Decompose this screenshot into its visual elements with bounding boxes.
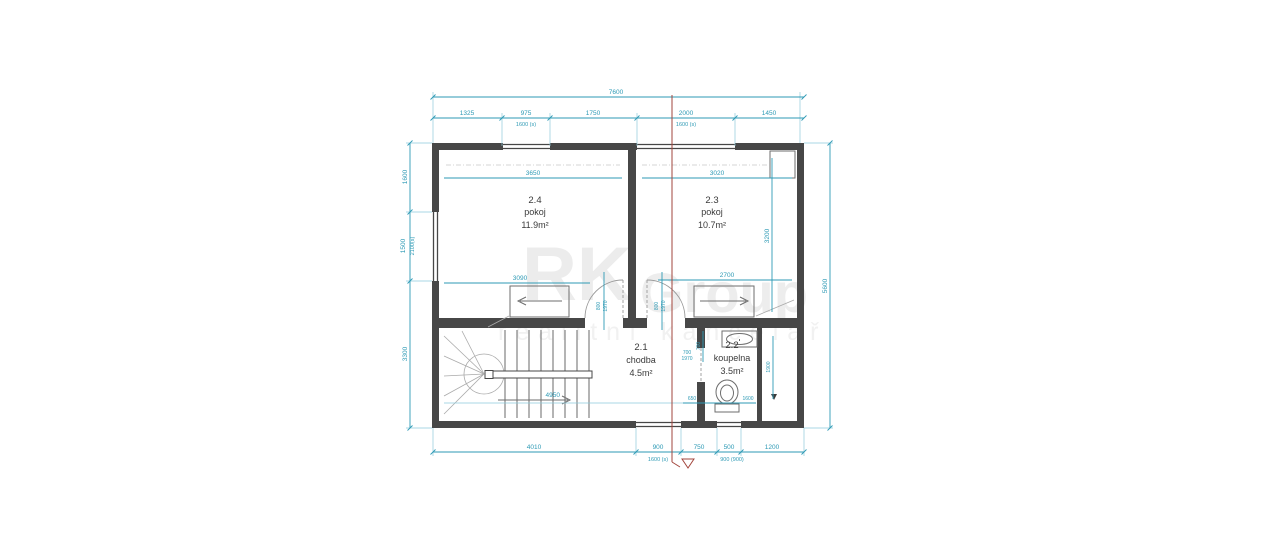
dim-top-3: 1750: [586, 110, 601, 117]
floor-plan-canvas: RK Group realitní kancelář: [0, 0, 1280, 551]
dim-door24-height: 1970: [603, 300, 609, 311]
room-22-name: koupelna: [714, 353, 751, 363]
dim-top-4: 2000: [679, 110, 694, 117]
dim-left-1: 1600: [402, 169, 409, 184]
dim-left-2: 1500: [400, 238, 407, 253]
chimney-shaft: [770, 151, 795, 178]
dim-room23-right: 3200: [764, 228, 771, 243]
closet-marker-triangle: [771, 394, 777, 400]
dim-bath-door-height: 1970: [681, 356, 692, 362]
dim-room23-bottom: 2700: [720, 272, 735, 279]
room-label-21: 2.1 chodba 4.5m²: [626, 342, 656, 378]
room-24-name: pokoj: [524, 207, 546, 217]
watermark: RK Group realitní kancelář: [498, 232, 827, 346]
room-label-23: 2.3 pokoj 10.7m²: [698, 195, 726, 230]
room-23-number: 2.3: [705, 195, 718, 206]
dim-bottom-5: 1200: [765, 444, 780, 451]
dim-bottom-2-sill: 1600 (s): [648, 457, 668, 463]
room-24-area: 11.9m²: [521, 220, 548, 230]
dim-top-2-sill: 1600 (s): [516, 122, 536, 128]
dim-bottom-3: 750: [694, 444, 705, 451]
dim-top-2: 975: [521, 110, 532, 117]
dim-bottom-1: 4010: [527, 444, 542, 451]
room-label-24: 2.4 pokoj 11.9m²: [521, 195, 548, 230]
room-22-area: 3.5m²: [720, 366, 743, 376]
dim-bottom-2: 900: [653, 444, 664, 451]
dim-right-total: 5600: [822, 278, 829, 293]
floor-plan-drawing: RK Group realitní kancelář: [0, 0, 1280, 551]
room-21-name: chodba: [626, 355, 656, 365]
dim-bottom-4-sill: 900 (900): [720, 457, 744, 463]
room-24-number: 2.4: [528, 195, 541, 206]
dim-left-2-sill: 2100(s): [410, 237, 416, 256]
stair-level-note: 4950: [546, 392, 561, 399]
dim-wc-right: 1600: [742, 396, 753, 402]
room-22-number: 2.2: [725, 340, 738, 351]
dim-sink: 700: [696, 342, 702, 351]
room-23-name: pokoj: [701, 207, 723, 217]
dim-bottom-4: 500: [724, 444, 735, 451]
dim-door23-width: 800: [654, 302, 660, 311]
watermark-rk: RK: [522, 232, 632, 317]
dim-room23-top: 3020: [710, 170, 725, 177]
dim-total-width: 7600: [609, 89, 624, 96]
dim-room24-top: 3650: [526, 170, 541, 177]
dim-left-3: 3300: [402, 346, 409, 361]
toilet: [715, 380, 739, 412]
room-21-number: 2.1: [634, 342, 647, 353]
dim-door24-width: 800: [596, 302, 602, 311]
dim-top-1: 1325: [460, 110, 475, 117]
dim-door23-height: 1970: [661, 300, 667, 311]
dim-wc-left: 650: [688, 396, 697, 402]
watermark-group: Group: [640, 261, 808, 324]
dim-top-4-sill: 1600 (s): [676, 122, 696, 128]
dim-closet: 1900: [766, 361, 772, 372]
room-23-area: 10.7m²: [698, 220, 726, 230]
dim-top-5: 1450: [762, 110, 777, 117]
stair-handrail: [488, 371, 592, 378]
dim-room24-bottom: 3090: [513, 275, 528, 282]
room-21-area: 4.5m²: [629, 368, 652, 378]
